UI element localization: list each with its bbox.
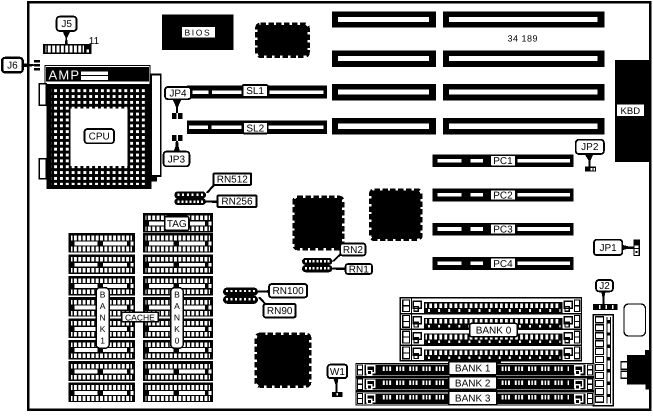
svg-text:RN1: RN1 (349, 264, 369, 275)
svg-text:BANK 0: BANK 0 (476, 326, 512, 337)
svg-text:K: K (100, 324, 106, 334)
svg-text:BIOS: BIOS (185, 27, 212, 37)
svg-text:BANK 1: BANK 1 (455, 364, 491, 375)
svg-text:RN100: RN100 (273, 286, 305, 297)
svg-text:JP3: JP3 (168, 154, 186, 165)
svg-text:W1: W1 (330, 367, 345, 378)
svg-text:J2: J2 (599, 281, 610, 292)
svg-text:PC2: PC2 (493, 190, 513, 201)
svg-text:J5: J5 (61, 19, 72, 30)
svg-text:0: 0 (175, 336, 180, 346)
svg-text:N: N (100, 313, 106, 323)
svg-text:CPU: CPU (89, 132, 110, 143)
svg-text:JP1: JP1 (599, 243, 617, 254)
svg-text:PC4: PC4 (493, 259, 513, 270)
svg-text:SL2: SL2 (246, 123, 264, 134)
svg-text:KBD: KBD (621, 106, 641, 117)
svg-text:K: K (174, 324, 180, 334)
svg-text:RN512: RN512 (217, 175, 249, 186)
svg-text:RN90: RN90 (267, 306, 293, 317)
svg-text:CACHE: CACHE (125, 312, 155, 322)
svg-text:34 189: 34 189 (508, 34, 539, 44)
svg-text:1: 1 (100, 336, 105, 346)
svg-text:JP2: JP2 (581, 142, 599, 153)
svg-text:A: A (100, 301, 106, 311)
svg-text:PC1: PC1 (493, 156, 513, 167)
svg-text:AMP: AMP (49, 68, 81, 83)
svg-text:A: A (174, 301, 180, 311)
svg-text:N: N (174, 313, 180, 323)
svg-text:TAG: TAG (167, 219, 187, 230)
svg-text:BANK 2: BANK 2 (455, 378, 491, 389)
svg-text:PC3: PC3 (493, 225, 513, 236)
svg-text:SL1: SL1 (246, 86, 264, 97)
svg-text:B: B (174, 290, 180, 300)
svg-text:RN256: RN256 (221, 197, 253, 208)
svg-text:BANK 3: BANK 3 (455, 393, 491, 404)
svg-text:J6: J6 (7, 61, 18, 72)
svg-text:RN2: RN2 (343, 245, 363, 256)
svg-text:11: 11 (89, 36, 100, 47)
svg-text:B: B (100, 290, 106, 300)
svg-text:JP4: JP4 (169, 89, 187, 100)
